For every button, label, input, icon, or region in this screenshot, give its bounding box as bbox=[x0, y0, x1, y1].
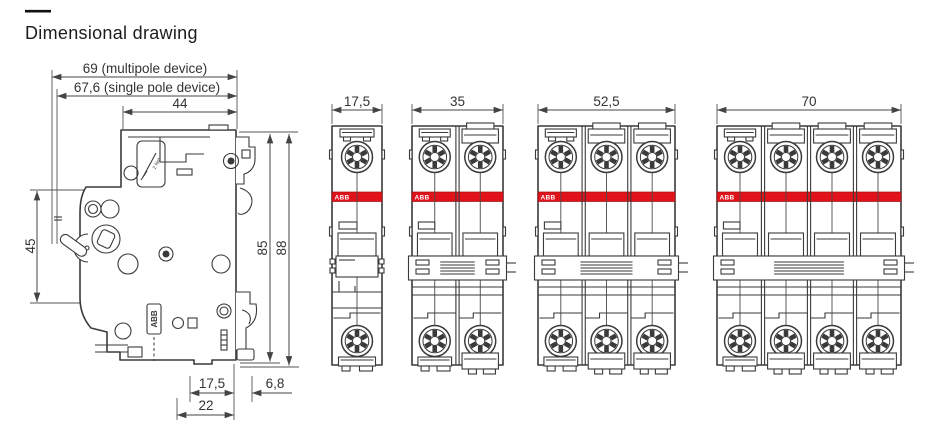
din-rail-clip bbox=[236, 137, 257, 360]
terminal-clamp bbox=[634, 123, 671, 143]
width-dimension-label: 17,5 bbox=[344, 94, 370, 109]
dim-upper-depth: 44 bbox=[172, 96, 188, 111]
page-header: — Dimensional drawing bbox=[25, 2, 198, 44]
abb-logo-text: ABB bbox=[720, 195, 735, 202]
terminal-screw-icon bbox=[342, 326, 373, 357]
abb-red-band bbox=[717, 192, 901, 202]
terminal-screw-icon bbox=[545, 142, 576, 173]
dim-rear-notch: 6,8 bbox=[266, 376, 285, 391]
page-title: Dimensional drawing bbox=[25, 23, 198, 44]
terminal-screw-icon bbox=[637, 142, 668, 173]
dimensional-drawing-page: — Dimensional drawing bbox=[0, 0, 938, 445]
abb-logo-text: ABB bbox=[415, 195, 430, 202]
toggle-handle bbox=[543, 233, 578, 256]
terminal-screw-icon bbox=[863, 326, 894, 357]
terminal-screw-icon bbox=[817, 326, 848, 357]
abb-logo-text: ABB bbox=[150, 310, 159, 328]
bottom-terminal bbox=[723, 357, 757, 371]
dim-mounting-height: 85 bbox=[255, 240, 270, 255]
dim-base-width: 22 bbox=[198, 398, 213, 413]
handle-tie-bar bbox=[535, 256, 689, 280]
terminal-screw-icon bbox=[771, 326, 802, 357]
abb-logo-text: ABB bbox=[335, 195, 350, 202]
terminal-screw-icon bbox=[465, 326, 496, 357]
terminal-screw-icon bbox=[771, 142, 802, 173]
toggle-handle bbox=[463, 233, 498, 256]
breaker-front-view-2pole: 35ABB bbox=[402, 93, 517, 385]
title-dash: — bbox=[25, 2, 198, 16]
terminal-screw-icon bbox=[637, 326, 668, 357]
terminal-screw-icon bbox=[465, 142, 496, 173]
top-rib bbox=[209, 125, 228, 130]
dim-depth-multipole: 69 (multipole device) bbox=[83, 61, 208, 76]
terminal-screw-icon bbox=[725, 142, 756, 173]
dim-front-height: 45 bbox=[23, 238, 38, 253]
toggle-knob-side bbox=[92, 225, 120, 253]
toggle-handle bbox=[338, 233, 376, 256]
dim-din-notch: 17,5 bbox=[199, 376, 225, 391]
toggle-handle bbox=[769, 233, 804, 256]
bottom-terminal bbox=[814, 353, 851, 374]
side-view-drawing: 69 (multipole device) 67,6 (single pole … bbox=[18, 58, 318, 442]
toggle-handle bbox=[635, 233, 670, 256]
bottom-terminal bbox=[634, 353, 671, 374]
terminal-clamp bbox=[462, 123, 498, 143]
terminal-screw-icon bbox=[817, 142, 848, 173]
bottom-terminal bbox=[462, 353, 498, 374]
terminal-screw-icon bbox=[863, 142, 894, 173]
terminal-screw-icon bbox=[419, 326, 450, 357]
terminal-screw-icon bbox=[419, 142, 450, 173]
dim-overall-height: 88 bbox=[274, 240, 289, 255]
handle-tie-bar bbox=[714, 256, 915, 280]
terminal-clamp bbox=[814, 123, 851, 143]
breaker-front-view-1pole: 17,5ABB bbox=[322, 93, 396, 385]
toggle-handle bbox=[417, 233, 452, 256]
abb-logo-text: ABB bbox=[541, 195, 556, 202]
bottom-terminal bbox=[418, 357, 452, 371]
bottom-terminal bbox=[339, 357, 376, 371]
width-dimension-label: 52,5 bbox=[593, 94, 619, 109]
toggle-handle bbox=[723, 233, 758, 256]
toggle-handle bbox=[589, 233, 624, 256]
bottom-terminal bbox=[544, 357, 578, 371]
terminal-screw-icon bbox=[725, 326, 756, 357]
terminal-clamp bbox=[768, 123, 805, 143]
breaker-front-view-4pole: 70ABB bbox=[707, 93, 915, 385]
terminal-clamp bbox=[860, 123, 897, 143]
terminal-screw-icon bbox=[591, 326, 622, 357]
width-dimension-label: 35 bbox=[450, 94, 465, 109]
bottom-terminal bbox=[588, 353, 625, 374]
bottom-terminal bbox=[768, 353, 805, 374]
bottom-terminal bbox=[860, 353, 897, 374]
terminal-screw-icon bbox=[591, 142, 622, 173]
terminal-screw-icon bbox=[545, 326, 576, 357]
terminal-clamp bbox=[588, 123, 625, 143]
width-dimension-label: 70 bbox=[801, 94, 816, 109]
breaker-front-view-3pole: 52,5ABB bbox=[528, 93, 689, 385]
toggle-handle bbox=[815, 233, 850, 256]
handle-tie-bar bbox=[409, 256, 517, 280]
dim-depth-singlepole: 67,6 (single pole device) bbox=[74, 80, 220, 95]
toggle-handle bbox=[861, 233, 896, 256]
terminal-screw-icon bbox=[342, 142, 373, 173]
